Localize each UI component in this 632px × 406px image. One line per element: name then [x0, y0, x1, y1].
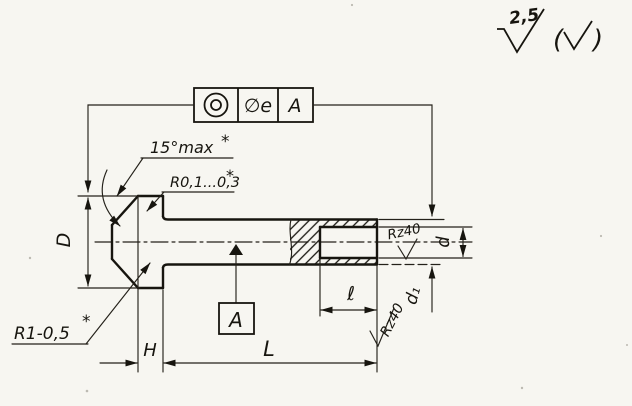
fcf-datum-ref: A: [287, 95, 302, 117]
dim-d1-label: d₁: [401, 285, 425, 307]
dim-length: L: [164, 266, 377, 372]
angle-star: *: [221, 132, 230, 152]
datum-symbol: A: [219, 244, 254, 334]
fcf-leader-right: [313, 105, 432, 216]
roughness-face-symbol: Rz40: [370, 301, 408, 346]
fillet-head-star: *: [82, 312, 91, 332]
fillet-top-callout: R0,1...0,3 *: [147, 166, 240, 211]
angle-label: 15°max: [150, 138, 214, 157]
dim-d-label: d: [433, 236, 454, 248]
fillet-top-star: *: [226, 166, 234, 185]
paren-close: ): [591, 25, 603, 55]
scan-speckles: [29, 4, 628, 392]
fillet-head-callout: R1-0,5 *: [12, 263, 150, 344]
check-icon-alt: [564, 21, 592, 49]
general-roughness-symbol: 2,5 ( ): [497, 5, 603, 55]
roughness-hole-symbol: Rz40: [386, 221, 422, 259]
datum-label: A: [227, 308, 243, 332]
concentricity-icon: [205, 94, 228, 117]
dim-L-label: L: [263, 337, 275, 361]
dim-l-label: ℓ: [346, 283, 355, 305]
technical-drawing: ∅e A D 15°max * R0,1...0,3 * R1-0,5 *: [0, 0, 632, 406]
datum-triangle: [229, 244, 243, 255]
paren-open: (: [553, 25, 565, 55]
dim-D-label: D: [53, 233, 75, 248]
fillet-head-label: R1-0,5: [14, 324, 70, 344]
dim-H-label: H: [143, 340, 157, 361]
general-roughness-value: 2,5: [508, 5, 541, 29]
fcf-tolerance: ∅e: [244, 95, 272, 117]
roughness-face-label: Rz40: [377, 301, 407, 339]
drawing-sheet: ∅e A D 15°max * R0,1...0,3 * R1-0,5 *: [0, 0, 632, 406]
dim-head-height: H: [100, 197, 163, 372]
dim-hole-depth: ℓ: [320, 260, 376, 316]
